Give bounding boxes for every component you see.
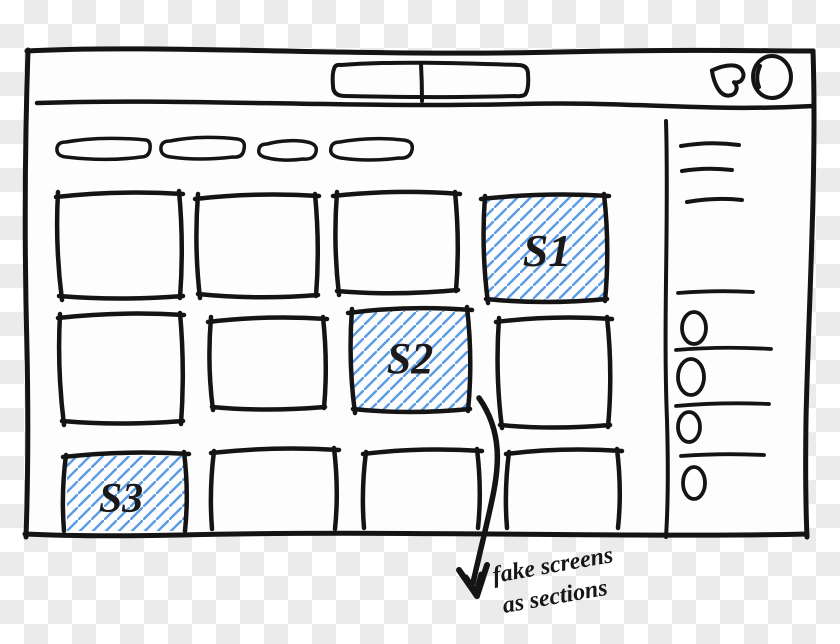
- section-card-s3[interactable]: S3: [63, 452, 189, 531]
- transparency-canvas: S1 S2 S3: [0, 0, 840, 644]
- section-label-s3: S3: [99, 476, 143, 522]
- section-label-s2: S2: [387, 334, 433, 383]
- window-frame-left: [25, 50, 28, 537]
- section-card-s1[interactable]: S1: [481, 194, 609, 303]
- window-frame-bottom: [25, 533, 807, 536]
- wireframe-sketch: S1 S2 S3: [0, 0, 840, 644]
- section-label-s1: S1: [523, 225, 572, 276]
- sidebar-list-separator-0: [678, 291, 753, 293]
- section-card-s2[interactable]: S2: [348, 307, 472, 413]
- sidebar-menu-line-2[interactable]: [682, 169, 732, 171]
- sidebar-list-separator-3: [681, 454, 764, 456]
- address-bar-divider: [421, 64, 422, 101]
- sidebar-divider: [666, 121, 668, 537]
